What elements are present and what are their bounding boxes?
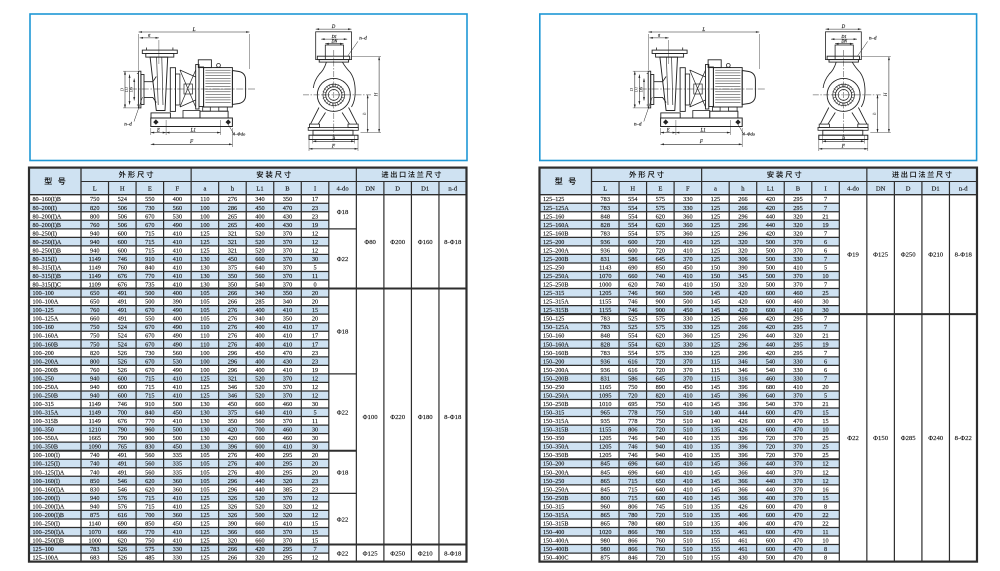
svg-text:490: 490 xyxy=(173,333,182,340)
svg-text:396: 396 xyxy=(228,444,237,451)
svg-text:936: 936 xyxy=(601,239,610,246)
svg-text:525: 525 xyxy=(628,324,637,331)
svg-text:366: 366 xyxy=(738,469,747,476)
svg-text:720: 720 xyxy=(656,247,665,254)
svg-text:410: 410 xyxy=(173,264,182,271)
svg-text:115: 115 xyxy=(711,375,720,382)
svg-text:940: 940 xyxy=(90,392,99,399)
svg-text:125: 125 xyxy=(200,529,209,536)
svg-text:444: 444 xyxy=(738,410,748,417)
svg-text:7: 7 xyxy=(824,316,827,323)
svg-text:17: 17 xyxy=(312,341,318,348)
svg-text:510: 510 xyxy=(683,427,692,434)
svg-text:1010: 1010 xyxy=(599,401,612,408)
svg-text:400: 400 xyxy=(255,213,264,220)
svg-text:936: 936 xyxy=(601,247,610,254)
svg-text:780: 780 xyxy=(656,529,665,536)
svg-text:470: 470 xyxy=(793,538,802,545)
svg-text:470: 470 xyxy=(793,503,802,510)
svg-text:510: 510 xyxy=(683,529,692,536)
svg-text:526: 526 xyxy=(118,555,127,562)
svg-text:100–160(I): 100–160(I) xyxy=(33,478,60,485)
svg-text:500: 500 xyxy=(683,290,692,297)
svg-text:554: 554 xyxy=(628,213,638,220)
svg-text:360: 360 xyxy=(683,230,692,237)
svg-text:6: 6 xyxy=(824,239,827,246)
svg-text:125–250: 125–250 xyxy=(543,265,564,271)
svg-text:19: 19 xyxy=(312,222,318,229)
svg-text:715: 715 xyxy=(628,486,637,493)
svg-text:10: 10 xyxy=(822,427,828,434)
svg-text:12: 12 xyxy=(312,512,318,519)
svg-text:430: 430 xyxy=(283,213,292,220)
svg-text:554: 554 xyxy=(628,196,638,203)
svg-text:346: 346 xyxy=(738,367,747,374)
svg-text:620: 620 xyxy=(145,478,154,485)
svg-text:960: 960 xyxy=(656,290,665,297)
svg-text:125–100A: 125–100A xyxy=(33,556,59,562)
svg-text:740: 740 xyxy=(656,273,665,280)
svg-text:500: 500 xyxy=(173,401,182,408)
svg-text:80–315(I): 80–315(I) xyxy=(33,256,57,263)
svg-text:370: 370 xyxy=(793,401,802,408)
svg-text:400: 400 xyxy=(255,333,264,340)
svg-text:440: 440 xyxy=(766,486,775,493)
svg-text:410: 410 xyxy=(173,495,182,502)
svg-text:125: 125 xyxy=(200,375,209,382)
svg-text:350: 350 xyxy=(228,418,237,425)
svg-text:746: 746 xyxy=(628,435,637,442)
svg-text:575: 575 xyxy=(656,350,665,357)
svg-text:1205: 1205 xyxy=(599,290,612,297)
svg-text:320: 320 xyxy=(793,333,802,340)
svg-text:285: 285 xyxy=(255,299,264,306)
svg-text:470: 470 xyxy=(793,418,802,425)
svg-text:1000: 1000 xyxy=(599,282,612,289)
svg-text:540: 540 xyxy=(255,282,264,289)
svg-text:330: 330 xyxy=(683,196,692,203)
svg-text:276: 276 xyxy=(228,452,237,459)
svg-text:420: 420 xyxy=(766,196,775,203)
svg-text:620: 620 xyxy=(145,486,154,493)
svg-text:100–100A: 100–100A xyxy=(33,300,59,306)
svg-text:5: 5 xyxy=(313,410,316,417)
svg-text:125: 125 xyxy=(200,520,209,527)
svg-text:460: 460 xyxy=(793,290,802,297)
svg-text:12: 12 xyxy=(312,555,318,562)
svg-text:440: 440 xyxy=(766,222,775,229)
svg-text:Φ210: Φ210 xyxy=(418,550,434,557)
svg-text:960: 960 xyxy=(145,427,154,434)
svg-text:B: B xyxy=(332,137,335,142)
svg-text:150–400: 150–400 xyxy=(543,530,564,536)
svg-text:526: 526 xyxy=(118,358,127,365)
svg-text:410: 410 xyxy=(283,324,292,331)
svg-text:936: 936 xyxy=(601,367,610,374)
svg-text:B: B xyxy=(796,185,801,192)
svg-text:150–350A: 150–350A xyxy=(543,445,569,451)
svg-text:DN: DN xyxy=(129,86,134,93)
svg-text:100–160(I)A: 100–160(I)A xyxy=(33,486,65,493)
svg-text:7: 7 xyxy=(824,350,827,357)
svg-text:715: 715 xyxy=(145,392,154,399)
svg-text:520: 520 xyxy=(255,392,264,399)
svg-text:400: 400 xyxy=(255,367,264,374)
svg-text:760: 760 xyxy=(90,222,99,229)
svg-text:100: 100 xyxy=(200,358,209,365)
svg-text:125: 125 xyxy=(200,495,209,502)
svg-text:30: 30 xyxy=(312,256,318,263)
svg-text:L: L xyxy=(603,185,607,192)
svg-text:370: 370 xyxy=(283,230,292,237)
svg-text:600: 600 xyxy=(766,546,775,553)
svg-text:7: 7 xyxy=(824,324,827,331)
svg-text:6: 6 xyxy=(824,247,827,254)
svg-text:E: E xyxy=(148,185,152,192)
svg-text:845: 845 xyxy=(601,469,610,476)
svg-text:680: 680 xyxy=(766,384,775,391)
svg-text:640: 640 xyxy=(766,392,775,399)
svg-text:80–200(I)B: 80–200(I)B xyxy=(33,222,61,229)
svg-text:320: 320 xyxy=(255,555,264,562)
svg-text:1070: 1070 xyxy=(88,529,101,536)
svg-text:524: 524 xyxy=(118,341,128,348)
svg-text:266: 266 xyxy=(738,205,747,212)
svg-text:266: 266 xyxy=(228,555,237,562)
svg-text:a: a xyxy=(203,185,206,192)
svg-text:7: 7 xyxy=(824,196,827,203)
svg-text:H: H xyxy=(630,185,635,192)
svg-text:150: 150 xyxy=(711,264,720,271)
svg-text:400: 400 xyxy=(173,196,182,203)
svg-text:900: 900 xyxy=(656,299,665,306)
svg-text:Φ100: Φ100 xyxy=(363,414,379,421)
svg-text:330: 330 xyxy=(173,555,182,562)
svg-text:Φ22: Φ22 xyxy=(337,256,349,263)
svg-text:390: 390 xyxy=(738,264,747,271)
svg-text:125–250B: 125–250B xyxy=(543,283,568,289)
svg-text:DN: DN xyxy=(876,185,886,192)
svg-text:E: E xyxy=(658,185,662,192)
svg-text:640: 640 xyxy=(656,469,665,476)
svg-text:575: 575 xyxy=(656,205,665,212)
svg-text:150–125A: 150–125A xyxy=(543,325,569,331)
svg-text:546: 546 xyxy=(118,486,127,493)
svg-text:125: 125 xyxy=(711,247,720,254)
svg-text:491: 491 xyxy=(118,452,127,459)
svg-text:450: 450 xyxy=(173,444,182,451)
svg-text:135: 135 xyxy=(711,444,720,451)
svg-text:396: 396 xyxy=(738,444,747,451)
svg-text:800: 800 xyxy=(90,213,99,220)
svg-text:Φ18: Φ18 xyxy=(337,329,349,336)
svg-text:866: 866 xyxy=(628,546,637,553)
svg-text:676: 676 xyxy=(118,418,127,425)
svg-text:660: 660 xyxy=(255,520,264,527)
svg-text:520: 520 xyxy=(255,239,264,246)
svg-text:670: 670 xyxy=(145,307,154,314)
svg-text:Φ22: Φ22 xyxy=(337,516,349,523)
svg-text:320: 320 xyxy=(793,222,802,229)
svg-text:783: 783 xyxy=(601,316,610,323)
svg-text:520: 520 xyxy=(255,384,264,391)
svg-text:F: F xyxy=(176,185,180,192)
svg-text:980: 980 xyxy=(601,538,610,545)
svg-text:420: 420 xyxy=(738,299,747,306)
svg-text:575: 575 xyxy=(656,230,665,237)
svg-text:715: 715 xyxy=(628,495,637,502)
svg-text:140: 140 xyxy=(711,410,720,417)
svg-text:145: 145 xyxy=(711,486,720,493)
svg-text:8-Φ22: 8-Φ22 xyxy=(955,435,972,442)
svg-text:586: 586 xyxy=(628,375,637,382)
svg-text:690: 690 xyxy=(628,264,637,271)
svg-text:125: 125 xyxy=(200,230,209,237)
svg-text:500: 500 xyxy=(766,555,775,562)
svg-text:680: 680 xyxy=(656,520,665,527)
svg-text:746: 746 xyxy=(628,299,637,306)
svg-text:370: 370 xyxy=(683,367,692,374)
svg-text:11: 11 xyxy=(823,529,829,536)
svg-text:1665: 1665 xyxy=(88,435,101,442)
svg-text:410: 410 xyxy=(283,341,292,348)
svg-text:450: 450 xyxy=(683,307,692,314)
svg-text:526: 526 xyxy=(118,367,127,374)
svg-text:746: 746 xyxy=(628,307,637,314)
svg-text:410: 410 xyxy=(683,486,692,493)
svg-text:DN: DN xyxy=(840,39,847,44)
svg-text:410: 410 xyxy=(173,392,182,399)
svg-text:616: 616 xyxy=(118,512,127,519)
svg-text:560: 560 xyxy=(145,452,154,459)
svg-text:370: 370 xyxy=(793,478,802,485)
svg-text:30: 30 xyxy=(822,307,828,314)
svg-text:370: 370 xyxy=(793,435,802,442)
svg-text:H: H xyxy=(120,185,125,192)
svg-text:110: 110 xyxy=(200,196,209,203)
svg-text:440: 440 xyxy=(766,478,775,485)
svg-text:296: 296 xyxy=(228,486,237,493)
svg-text:145: 145 xyxy=(711,478,720,485)
svg-text:30: 30 xyxy=(312,444,318,451)
svg-text:410: 410 xyxy=(173,273,182,280)
svg-text:715: 715 xyxy=(628,478,637,485)
svg-text:Φ285: Φ285 xyxy=(901,435,917,442)
svg-text:526: 526 xyxy=(118,546,127,553)
svg-text:696: 696 xyxy=(628,461,637,468)
svg-text:600: 600 xyxy=(766,529,775,536)
svg-text:600: 600 xyxy=(118,230,127,237)
svg-text:450: 450 xyxy=(173,410,182,417)
svg-text:360: 360 xyxy=(173,486,182,493)
svg-text:370: 370 xyxy=(283,375,292,382)
svg-text:145: 145 xyxy=(711,290,720,297)
svg-text:265: 265 xyxy=(228,213,237,220)
svg-text:125–315B: 125–315B xyxy=(543,308,568,314)
svg-text:490: 490 xyxy=(173,341,182,348)
svg-text:125–125: 125–125 xyxy=(543,197,564,203)
svg-text:266: 266 xyxy=(228,299,237,306)
svg-text:935: 935 xyxy=(601,418,610,425)
svg-text:150–350B: 150–350B xyxy=(543,453,568,459)
svg-text:30: 30 xyxy=(312,435,318,442)
svg-text:790: 790 xyxy=(118,427,127,434)
svg-text:770: 770 xyxy=(145,529,154,536)
svg-text:125: 125 xyxy=(200,546,209,553)
svg-text:820: 820 xyxy=(90,350,99,357)
svg-text:660: 660 xyxy=(255,529,264,536)
svg-text:430: 430 xyxy=(283,222,292,229)
svg-text:940: 940 xyxy=(90,375,99,382)
svg-text:150–250B: 150–250B xyxy=(543,496,568,502)
svg-text:266: 266 xyxy=(228,546,237,553)
svg-text:740: 740 xyxy=(90,469,99,476)
svg-text:715: 715 xyxy=(145,239,154,246)
svg-text:7: 7 xyxy=(824,230,827,237)
svg-text:396: 396 xyxy=(738,452,747,459)
svg-text:21: 21 xyxy=(822,401,828,408)
svg-text:1205: 1205 xyxy=(599,444,612,451)
svg-text:500: 500 xyxy=(145,299,154,306)
svg-text:295: 295 xyxy=(793,324,802,331)
svg-text:125–160A: 125–160A xyxy=(543,223,569,229)
svg-text:23: 23 xyxy=(312,205,318,212)
svg-text:340: 340 xyxy=(255,290,264,297)
svg-text:295: 295 xyxy=(793,350,802,357)
svg-text:125: 125 xyxy=(200,247,209,254)
svg-text:460: 460 xyxy=(283,427,292,434)
svg-text:100–160A: 100–160A xyxy=(33,334,59,340)
svg-text:1205: 1205 xyxy=(599,435,612,442)
svg-text:145: 145 xyxy=(711,495,720,502)
svg-text:Φ250: Φ250 xyxy=(901,252,917,259)
svg-text:I: I xyxy=(314,185,316,192)
svg-text:12: 12 xyxy=(312,495,318,502)
svg-text:F: F xyxy=(686,185,690,192)
svg-text:560: 560 xyxy=(145,461,154,468)
svg-text:150–200: 150–200 xyxy=(543,462,564,468)
svg-text:D: D xyxy=(841,25,846,30)
svg-text:375: 375 xyxy=(228,410,237,417)
svg-text:396: 396 xyxy=(738,392,747,399)
svg-text:125: 125 xyxy=(200,384,209,391)
svg-text:1149: 1149 xyxy=(89,401,101,408)
svg-text:575: 575 xyxy=(145,546,154,553)
svg-text:461: 461 xyxy=(738,546,747,553)
svg-text:1149: 1149 xyxy=(89,256,101,263)
svg-text:420: 420 xyxy=(738,290,747,297)
svg-text:140: 140 xyxy=(711,418,720,425)
svg-text:370: 370 xyxy=(793,469,802,476)
svg-text:370: 370 xyxy=(683,358,692,365)
svg-text:100–250: 100–250 xyxy=(33,376,54,382)
svg-text:440: 440 xyxy=(766,341,775,348)
svg-text:286: 286 xyxy=(228,205,237,212)
svg-text:370: 370 xyxy=(283,418,292,425)
svg-text:150–315A: 150–315A xyxy=(543,419,569,425)
svg-text:276: 276 xyxy=(228,324,237,331)
svg-text:370: 370 xyxy=(283,239,292,246)
svg-text:296: 296 xyxy=(228,367,237,374)
svg-text:1210: 1210 xyxy=(88,427,101,434)
svg-text:410: 410 xyxy=(683,444,692,451)
svg-text:400: 400 xyxy=(255,324,264,331)
svg-text:125: 125 xyxy=(711,350,720,357)
svg-text:554: 554 xyxy=(628,230,638,237)
svg-text:440: 440 xyxy=(766,213,775,220)
svg-text:130: 130 xyxy=(200,435,209,442)
svg-text:440: 440 xyxy=(766,333,775,340)
svg-text:940: 940 xyxy=(90,503,99,510)
svg-text:320: 320 xyxy=(738,282,747,289)
svg-text:560: 560 xyxy=(255,273,264,280)
svg-text:110: 110 xyxy=(200,324,209,331)
svg-text:130: 130 xyxy=(200,410,209,417)
svg-text:145: 145 xyxy=(711,299,720,306)
svg-text:778: 778 xyxy=(628,410,637,417)
svg-text:12: 12 xyxy=(312,384,318,391)
svg-text:1155: 1155 xyxy=(599,307,611,314)
svg-text:890: 890 xyxy=(656,384,665,391)
svg-text:410: 410 xyxy=(683,239,692,246)
svg-text:370: 370 xyxy=(793,444,802,451)
svg-text:DN: DN xyxy=(365,185,375,192)
svg-text:150–250: 150–250 xyxy=(543,479,564,485)
svg-text:276: 276 xyxy=(228,333,237,340)
svg-text:12: 12 xyxy=(822,469,828,476)
svg-text:600: 600 xyxy=(766,538,775,545)
svg-text:n–d: n–d xyxy=(124,123,132,128)
svg-text:7: 7 xyxy=(824,256,827,263)
svg-text:80–160(I)B: 80–160(I)B xyxy=(33,196,61,203)
svg-text:490: 490 xyxy=(173,307,182,314)
svg-text:410: 410 xyxy=(173,503,182,510)
svg-text:660: 660 xyxy=(255,435,264,442)
svg-text:320: 320 xyxy=(793,213,802,220)
svg-text:1149: 1149 xyxy=(89,273,101,280)
svg-text:720: 720 xyxy=(766,444,775,451)
svg-text:470: 470 xyxy=(793,512,802,519)
svg-text:695: 695 xyxy=(628,401,637,408)
svg-text:660: 660 xyxy=(255,538,264,545)
svg-text:B: B xyxy=(842,137,845,142)
svg-text:16: 16 xyxy=(822,486,828,493)
svg-text:820: 820 xyxy=(656,392,665,399)
svg-text:865: 865 xyxy=(601,520,610,527)
svg-text:450: 450 xyxy=(255,350,264,357)
svg-text:400: 400 xyxy=(255,358,264,365)
svg-text:410: 410 xyxy=(173,256,182,263)
svg-text:295: 295 xyxy=(793,316,802,323)
svg-text:554: 554 xyxy=(628,341,638,348)
svg-text:150–200: 150–200 xyxy=(543,359,564,365)
svg-text:660: 660 xyxy=(255,256,264,263)
svg-text:340: 340 xyxy=(255,316,264,323)
svg-text:600: 600 xyxy=(766,503,775,510)
svg-text:670: 670 xyxy=(145,222,154,229)
svg-text:20: 20 xyxy=(312,299,318,306)
svg-text:296: 296 xyxy=(228,350,237,357)
svg-text:145: 145 xyxy=(711,401,720,408)
svg-text:125–125A: 125–125A xyxy=(543,206,569,212)
svg-text:470: 470 xyxy=(793,555,802,562)
svg-text:840: 840 xyxy=(145,410,154,417)
svg-text:510: 510 xyxy=(683,546,692,553)
svg-text:8: 8 xyxy=(824,503,827,510)
svg-text:100–315B: 100–315B xyxy=(33,419,58,425)
svg-text:135: 135 xyxy=(711,452,720,459)
svg-text:125: 125 xyxy=(711,341,720,348)
